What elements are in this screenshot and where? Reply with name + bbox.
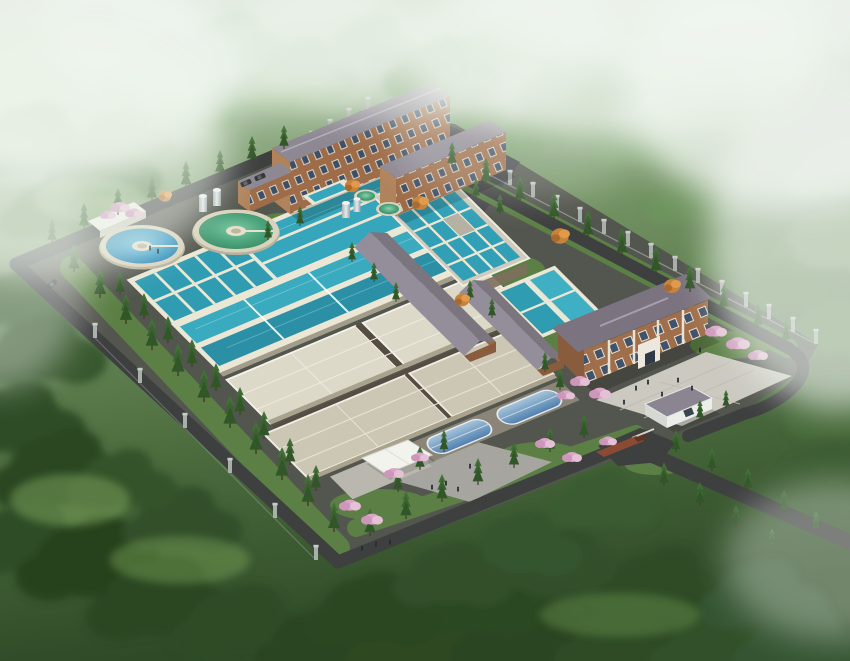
aerial-rendering-water-treatment-plant	[0, 0, 850, 661]
scene-canvas	[0, 0, 850, 661]
